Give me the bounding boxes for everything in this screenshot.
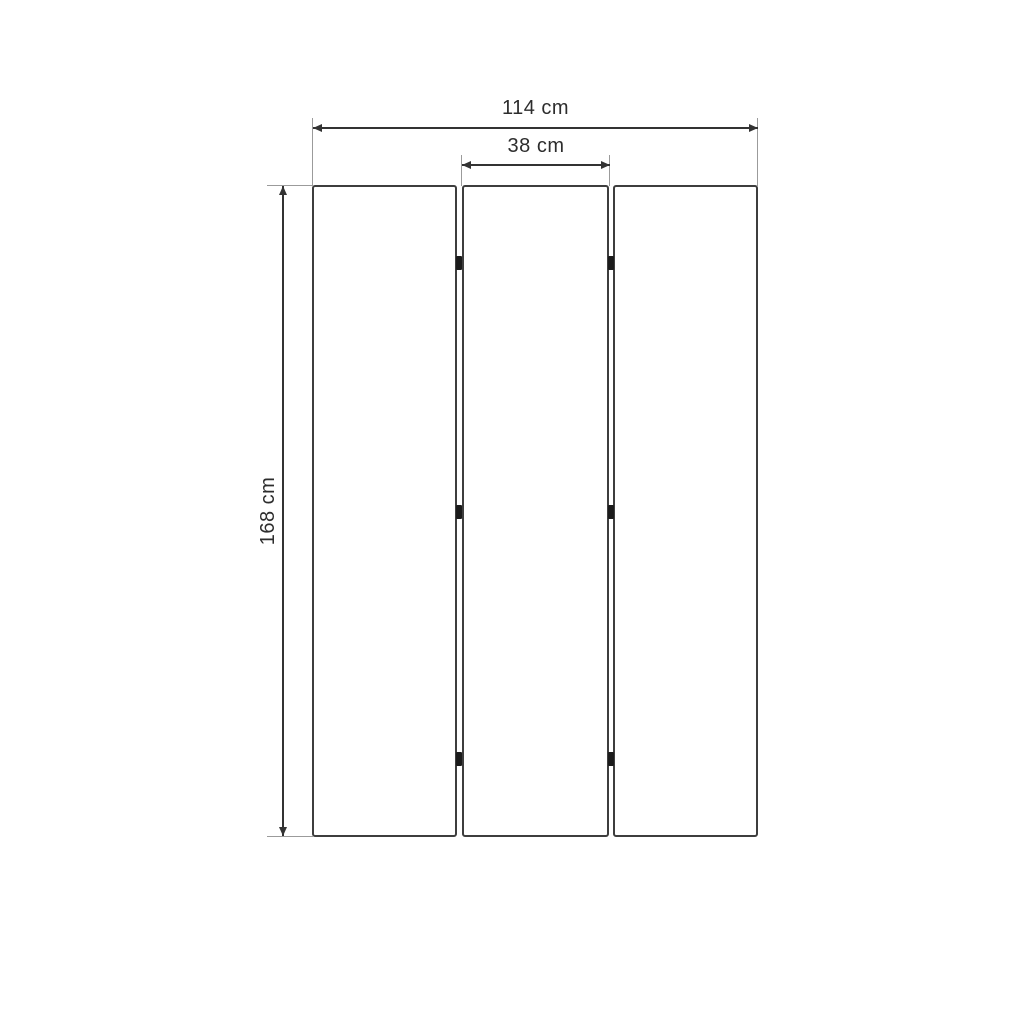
dimension-line <box>462 164 610 166</box>
arrowhead-left-icon <box>313 124 322 132</box>
arrowhead-right-icon <box>749 124 758 132</box>
extension-line <box>267 836 313 837</box>
hinge-mark <box>456 256 462 270</box>
panel-left <box>312 185 457 837</box>
arrowhead-up-icon <box>279 186 287 195</box>
dimension-line <box>313 127 758 129</box>
dimension-line <box>282 186 284 836</box>
panel-center <box>462 185 609 837</box>
hinge-mark <box>608 256 614 270</box>
dimension-diagram: 114 cm 38 cm 168 cm <box>0 0 1024 1024</box>
extension-line <box>461 155 462 186</box>
arrowhead-left-icon <box>462 161 471 169</box>
arrowhead-down-icon <box>279 827 287 836</box>
hinge-mark <box>456 505 462 519</box>
hinge-mark <box>608 505 614 519</box>
hinge-mark <box>456 752 462 766</box>
height-label: 168 cm <box>256 461 280 561</box>
panel-width-label: 38 cm <box>462 134 610 158</box>
panel-right <box>613 185 758 837</box>
extension-line <box>609 155 610 186</box>
arrowhead-right-icon <box>601 161 610 169</box>
total-width-label: 114 cm <box>313 96 758 120</box>
hinge-mark <box>608 752 614 766</box>
extension-line <box>267 185 313 186</box>
